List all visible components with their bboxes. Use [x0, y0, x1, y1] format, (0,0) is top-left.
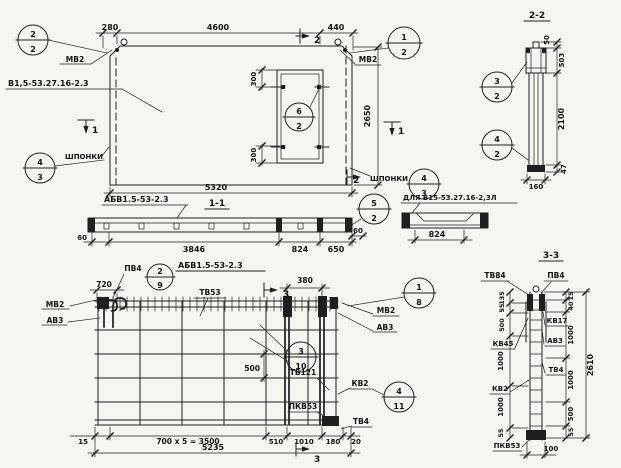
- s11-callout-den: 2: [371, 214, 377, 223]
- s33-label-kv45: КВ45: [493, 340, 514, 348]
- s22-callout-lower-num: 4: [494, 135, 500, 144]
- reinf-dim-180: 180: [326, 438, 341, 446]
- s11-dim-824: 824: [292, 245, 309, 254]
- s22-callout-upper-num: 3: [494, 77, 500, 86]
- reinf-dim-20: 20: [351, 438, 361, 446]
- s22-dim-47: 47: [560, 164, 568, 174]
- s33-label-tv4: ТВ4: [549, 366, 564, 374]
- reinf-label-av3-left: АВ3: [47, 316, 64, 325]
- reinf-label-tv4: ТВ4: [353, 417, 369, 426]
- drawing-sheet: 280 4600 440 5320 2650 300 300 МВ2 МВ2 В…: [0, 0, 621, 468]
- reinf-label-mv2-right: МВ2: [377, 306, 395, 315]
- s11-dim-650: 650: [328, 245, 345, 254]
- reinf-callout-bar-den: 11: [393, 402, 405, 411]
- plan-section-mark-1-right: 1: [398, 127, 404, 137]
- s33-label-pv4: ПВ4: [547, 271, 564, 280]
- reinf-label-tv53: ТВ53: [199, 288, 220, 297]
- s22-callout-lower-den: 2: [494, 150, 500, 159]
- s33-right-dim-500: 500: [567, 407, 575, 422]
- plan-callout-tl-den: 2: [30, 45, 36, 54]
- reinf-dim-15: 15: [78, 438, 88, 446]
- plan-dim-4600: 4600: [207, 23, 230, 32]
- plan-callout-keysl-num: 4: [37, 158, 43, 167]
- plan-linework: [16, 25, 441, 199]
- plan-label-keys-left: ШПОНКИ: [65, 153, 103, 161]
- plan-dim-2650: 2650: [363, 104, 372, 127]
- reinf-label-av3-right: АВ3: [377, 323, 394, 332]
- plan-dim-300-top: 300: [250, 72, 258, 87]
- reinf-dim-500: 500: [244, 364, 260, 373]
- plan-callout-opening-num: 6: [296, 107, 302, 116]
- s33-right-dim-40: 40: [567, 301, 575, 310]
- section-1-1: 1-1 АБВ1.5-53-2.3 60 3846 824 650 60 5 2: [77, 194, 391, 254]
- reinf-label-pkv53: ПКВ53: [289, 402, 318, 411]
- plan-callout-tr-num: 1: [401, 33, 407, 42]
- plan-label-keys-right: ШПОНКИ: [370, 175, 408, 183]
- section-2-2: 2-2 50 503 2100 47 160 3 2 4 2: [480, 11, 568, 191]
- s33-dim-100: 100: [544, 445, 559, 453]
- plan-callout-keysl-den: 3: [37, 173, 43, 182]
- plan-callout-keysr-num: 4: [421, 174, 427, 183]
- plan-section-mark-2-bottom: 2: [353, 176, 359, 186]
- plan-section-mark-2-top: 2: [314, 36, 320, 46]
- reinf-callout-tr-den: 8: [416, 298, 422, 307]
- reinforcement-linework: [68, 264, 436, 457]
- reinf-section-mark-bottom: 3: [314, 455, 320, 465]
- plan-callout-tr-den: 2: [401, 48, 407, 57]
- s22-dim-160: 160: [529, 183, 544, 191]
- s33-label-pkv53: ПКВ53: [494, 442, 521, 450]
- section-1-1-title: 1-1: [209, 199, 225, 209]
- s11-dim-3846: 3846: [183, 245, 206, 254]
- plan-view: 280 4600 440 5320 2650 300 300 МВ2 МВ2 В…: [6, 23, 441, 199]
- s33-right-dim-15: 15: [567, 292, 575, 301]
- plan-callout-tl-num: 2: [30, 30, 36, 39]
- reinf-title: АБВ1.5-53-2.3: [178, 261, 243, 270]
- s22-dim-50: 50: [543, 35, 551, 45]
- s11-callout-num: 5: [371, 199, 377, 208]
- reinf-callout-bar-num: 4: [396, 387, 402, 396]
- s33-left-dim-55: 55: [498, 304, 506, 313]
- plan-label-mv2-right: МВ2: [359, 55, 377, 64]
- s22-callout-upper-den: 2: [494, 92, 500, 101]
- reinf-callout-hook-den: 9: [157, 281, 163, 290]
- reinf-section-mark-top: 3: [283, 290, 289, 300]
- detail-824: ДЛЯ В15-53.27.16-2,3Л 824: [401, 194, 517, 244]
- detail-824-label: ДЛЯ В15-53.27.16-2,3Л: [403, 194, 497, 202]
- reinforcement-view: АБВ1.5-53-2.3 ПВ4 ТВ53 МВ2 АВ3 МВ2 АВ3 Т…: [42, 261, 436, 465]
- detail-824-dim: 824: [429, 230, 446, 239]
- s33-label-av3: АВ3: [547, 337, 563, 345]
- s33-left-dim-1000b: 1000: [497, 397, 505, 417]
- plan-dim-300-bottom: 300: [250, 148, 258, 163]
- s33-left-dim-1000a: 1000: [497, 351, 505, 371]
- s11-dim-60-left: 60: [77, 234, 87, 242]
- plan-dim-440: 440: [328, 23, 345, 32]
- plan-dim-280: 280: [102, 23, 119, 32]
- reinf-dim-5235: 5235: [202, 443, 225, 452]
- s33-dim-2610: 2610: [586, 353, 595, 376]
- s33-left-dim-500: 500: [498, 318, 506, 332]
- reinf-dim-510: 510: [269, 438, 284, 446]
- s22-dim-2100: 2100: [557, 107, 566, 130]
- s33-left-dim-135: 135: [498, 291, 506, 304]
- section-2-2-title: 2-2: [529, 11, 545, 21]
- s33-right-dim-1000a: 1000: [567, 325, 575, 345]
- s33-label-kv17: КВ17: [547, 317, 568, 325]
- reinf-dim-720: 720: [96, 280, 112, 289]
- s33-label-tv84: ТВ84: [484, 271, 505, 280]
- s11-dim-60-right: 60: [353, 227, 363, 235]
- s33-right-dim-55: 55: [567, 428, 575, 437]
- reinf-dim-380: 380: [297, 276, 313, 285]
- s33-left-dim-55b: 55: [497, 429, 505, 438]
- s11-member-mark: АБВ1.5-53-2.3: [104, 195, 169, 204]
- plan-label-panel-mark: В1,5-53.27.16-2.3: [8, 79, 89, 88]
- plan-label-mv2-left: МВ2: [66, 55, 84, 64]
- reinf-label-pv4: ПВ4: [124, 264, 141, 273]
- s33-right-dim-1000b: 1000: [567, 370, 575, 390]
- s33-label-kv2: КВ2: [492, 385, 508, 393]
- section-2-2-linework: [480, 39, 561, 185]
- drawing-canvas: 280 4600 440 5320 2650 300 300 МВ2 МВ2 В…: [0, 0, 621, 468]
- plan-dim-5320: 5320: [205, 183, 228, 192]
- section-3-3-title: 3-3: [543, 251, 559, 261]
- reinf-callout-hook-num: 2: [157, 267, 163, 276]
- section-3-3: 3-3 ТВ84 ПВ4 КВ17 АВ3 КВ45 ТВ4 КВ2 ПКВ53…: [481, 251, 595, 459]
- reinf-label-kv2: КВ2: [351, 379, 368, 388]
- reinf-callout-mid-num: 3: [298, 347, 304, 356]
- plan-callout-opening-den: 2: [296, 122, 302, 131]
- reinf-callout-mid-den: 10: [295, 362, 307, 371]
- reinf-dim-1010: 1010: [294, 438, 314, 446]
- reinf-label-mv2-left: МВ2: [46, 300, 64, 309]
- reinf-callout-tr-num: 1: [416, 283, 422, 292]
- plan-section-mark-1-left: 1: [92, 126, 98, 136]
- s22-dim-503: 503: [558, 53, 566, 68]
